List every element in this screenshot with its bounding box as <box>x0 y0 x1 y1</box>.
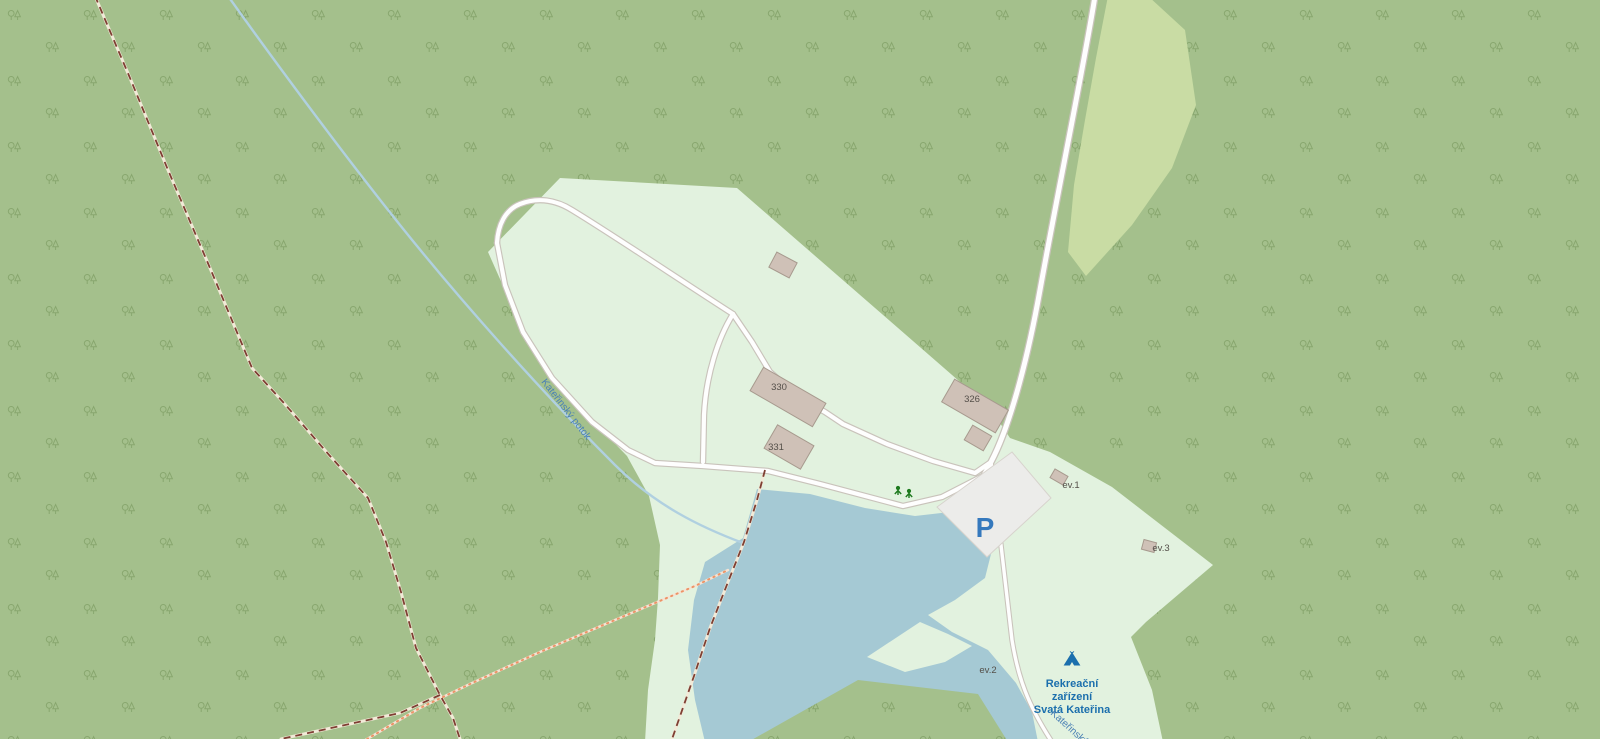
place-label-line1: Rekreační <box>1046 678 1100 690</box>
building-ev2-label: ev.2 <box>979 665 996 676</box>
parking-symbol: P <box>976 512 995 543</box>
place-label-line3: Svatá Kateřina <box>1034 704 1111 716</box>
place-label-line2: zařízení <box>1052 691 1093 703</box>
building-ev1-label: ev.1 <box>1062 480 1079 491</box>
building-ev3-label: ev.3 <box>1152 543 1169 554</box>
building-331-label: 331 <box>768 442 784 453</box>
building-330-label: 330 <box>771 382 787 393</box>
map-viewport[interactable]: P 330 331 326 ev.1 ev.2 ev.3 Rekreační z… <box>0 0 1600 739</box>
building-326-label: 326 <box>964 394 980 405</box>
